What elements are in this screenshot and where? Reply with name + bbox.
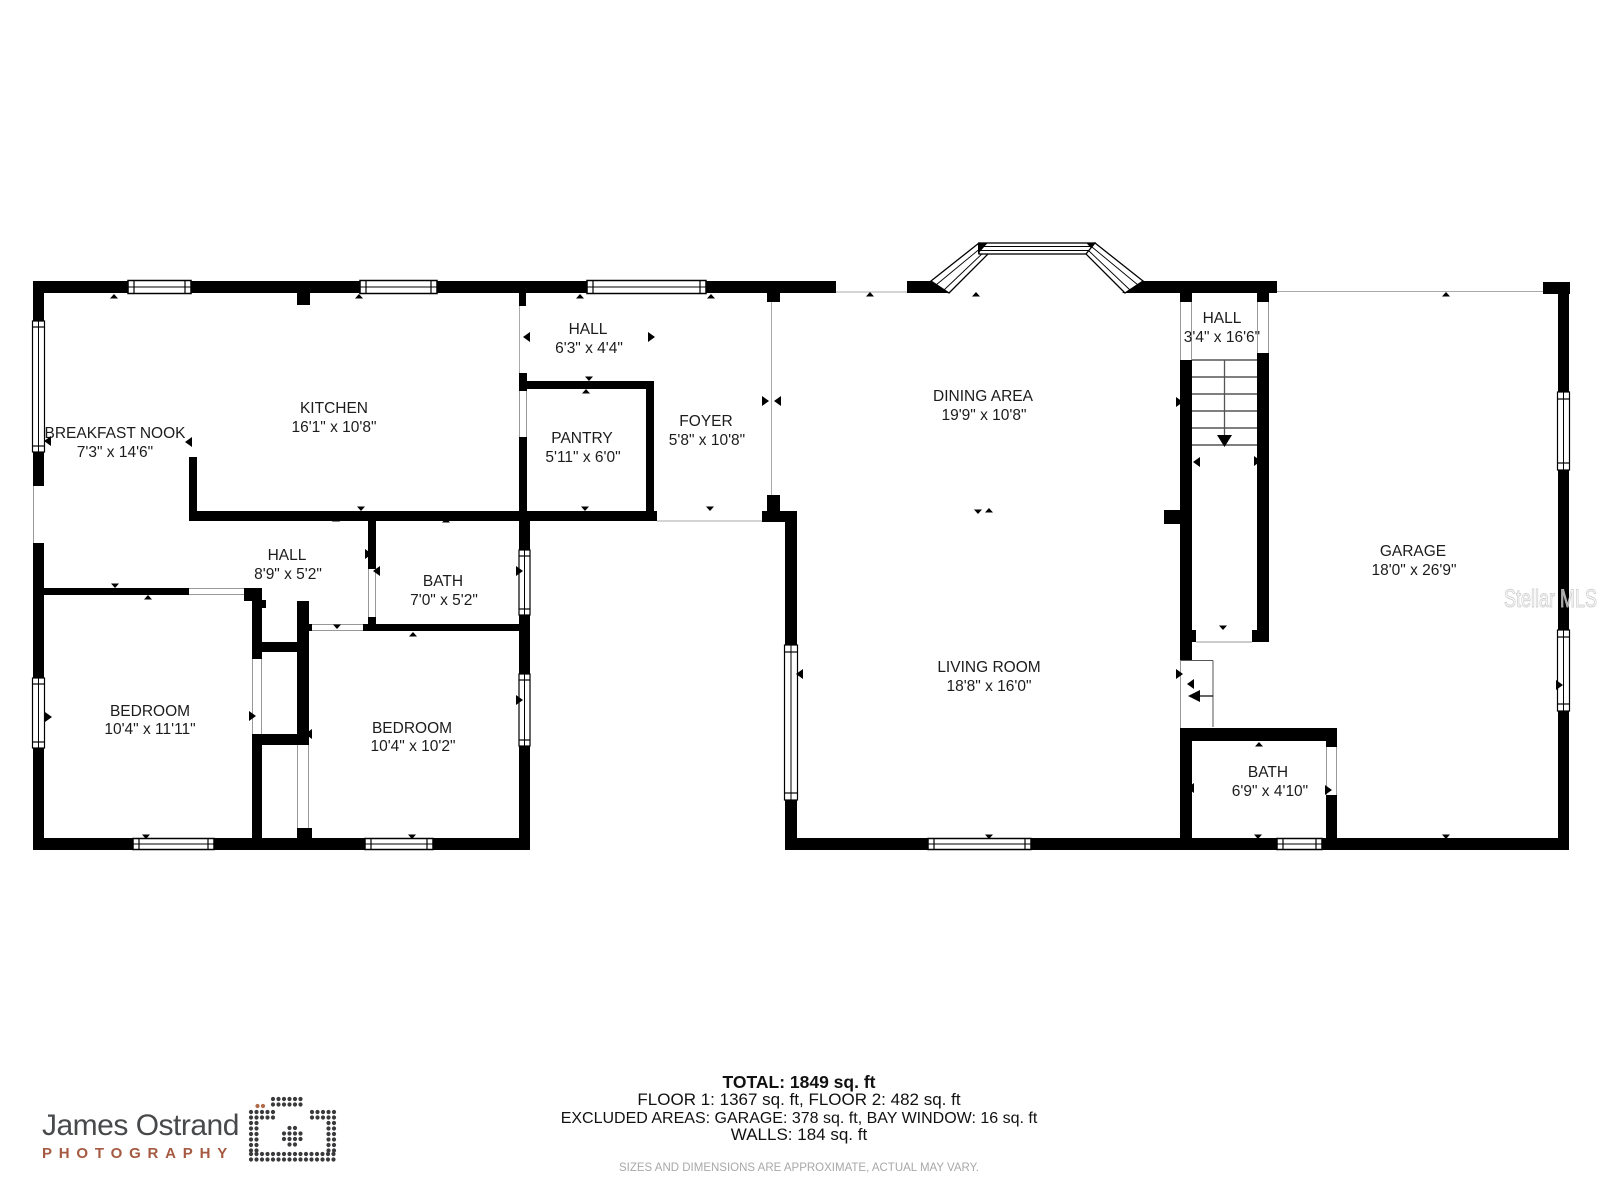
svg-text:PANTRY: PANTRY <box>551 430 612 447</box>
svg-text:DINING AREA: DINING AREA <box>933 388 1034 405</box>
svg-text:5'8" x 10'8": 5'8" x 10'8" <box>669 432 745 449</box>
svg-text:HALL: HALL <box>569 321 608 338</box>
svg-text:8'9" x 5'2": 8'9" x 5'2" <box>254 566 322 583</box>
svg-text:BATH: BATH <box>423 573 463 590</box>
svg-text:7'0" x 5'2": 7'0" x 5'2" <box>410 592 478 609</box>
svg-text:WALLS: 184 sq. ft: WALLS: 184 sq. ft <box>731 1125 868 1144</box>
svg-text:6'3" x 4'4": 6'3" x 4'4" <box>555 340 623 357</box>
svg-text:7'3" x 14'6": 7'3" x 14'6" <box>77 444 153 461</box>
svg-text:SIZES AND DIMENSIONS ARE APPRO: SIZES AND DIMENSIONS ARE APPROXIMATE, AC… <box>619 1162 979 1174</box>
svg-text:FOYER: FOYER <box>679 413 732 430</box>
svg-text:10'4" x 11'11": 10'4" x 11'11" <box>104 721 195 738</box>
svg-text:Stellar MLS: Stellar MLS <box>1504 585 1597 613</box>
svg-text:10'4" x 10'2": 10'4" x 10'2" <box>370 738 455 755</box>
svg-text:GARAGE: GARAGE <box>1380 543 1446 560</box>
svg-text:16'1" x 10'8": 16'1" x 10'8" <box>291 419 376 436</box>
svg-text:BREAKFAST NOOK: BREAKFAST NOOK <box>45 425 187 442</box>
svg-text:KITCHEN: KITCHEN <box>300 400 368 417</box>
svg-text:BEDROOM: BEDROOM <box>110 703 190 720</box>
svg-text:FLOOR 1: 1367 sq. ft, FLOOR 2:: FLOOR 1: 1367 sq. ft, FLOOR 2: 482 sq. f… <box>637 1090 960 1109</box>
svg-text:BATH: BATH <box>1248 764 1288 781</box>
svg-text:19'9" x 10'8": 19'9" x 10'8" <box>941 407 1026 424</box>
svg-text:BEDROOM: BEDROOM <box>372 720 452 737</box>
svg-text:TOTAL: 1849 sq. ft: TOTAL: 1849 sq. ft <box>723 1072 876 1092</box>
svg-text:James Ostrand: James Ostrand <box>42 1109 239 1142</box>
svg-text:HALL: HALL <box>268 547 307 564</box>
svg-text:18'0" x 26'9": 18'0" x 26'9" <box>1371 562 1456 579</box>
svg-text:HALL: HALL <box>1203 310 1242 327</box>
svg-text:PHOTOGRAPHY: PHOTOGRAPHY <box>42 1145 234 1162</box>
svg-text:5'11" x 6'0": 5'11" x 6'0" <box>545 449 620 466</box>
svg-text:3'4" x 16'6": 3'4" x 16'6" <box>1184 329 1260 346</box>
svg-text:LIVING ROOM: LIVING ROOM <box>937 659 1040 676</box>
svg-text:6'9" x 4'10": 6'9" x 4'10" <box>1232 783 1308 800</box>
svg-text:18'8" x 16'0": 18'8" x 16'0" <box>946 678 1031 695</box>
